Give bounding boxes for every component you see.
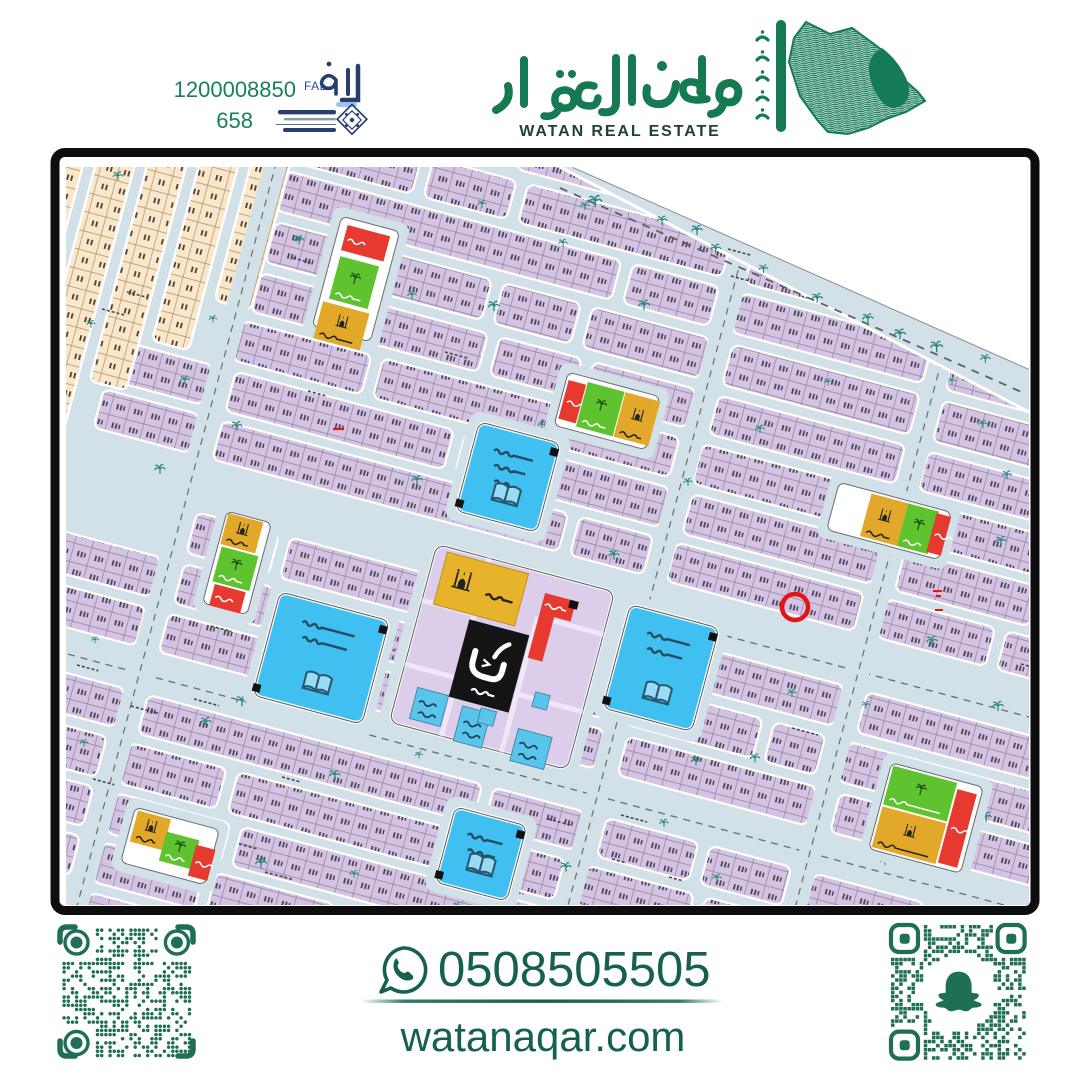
svg-text:watanaqar.com: watanaqar.com: [400, 1013, 686, 1060]
svg-text:1200008850: 1200008850: [174, 77, 296, 102]
svg-text:658: 658: [216, 108, 253, 133]
svg-text:0508505505: 0508505505: [438, 943, 711, 997]
svg-text:FAL: FAL: [304, 79, 327, 93]
svg-text:WATAN REAL ESTATE: WATAN REAL ESTATE: [519, 123, 720, 140]
